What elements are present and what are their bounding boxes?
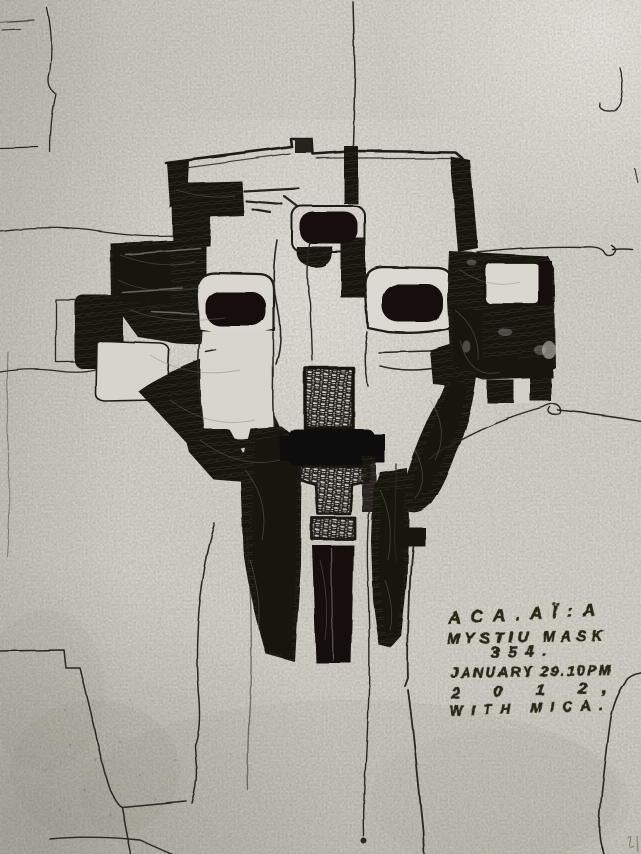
- svg-text:JANUARY 29.10PM: JANUARY 29.10PM: [450, 662, 611, 681]
